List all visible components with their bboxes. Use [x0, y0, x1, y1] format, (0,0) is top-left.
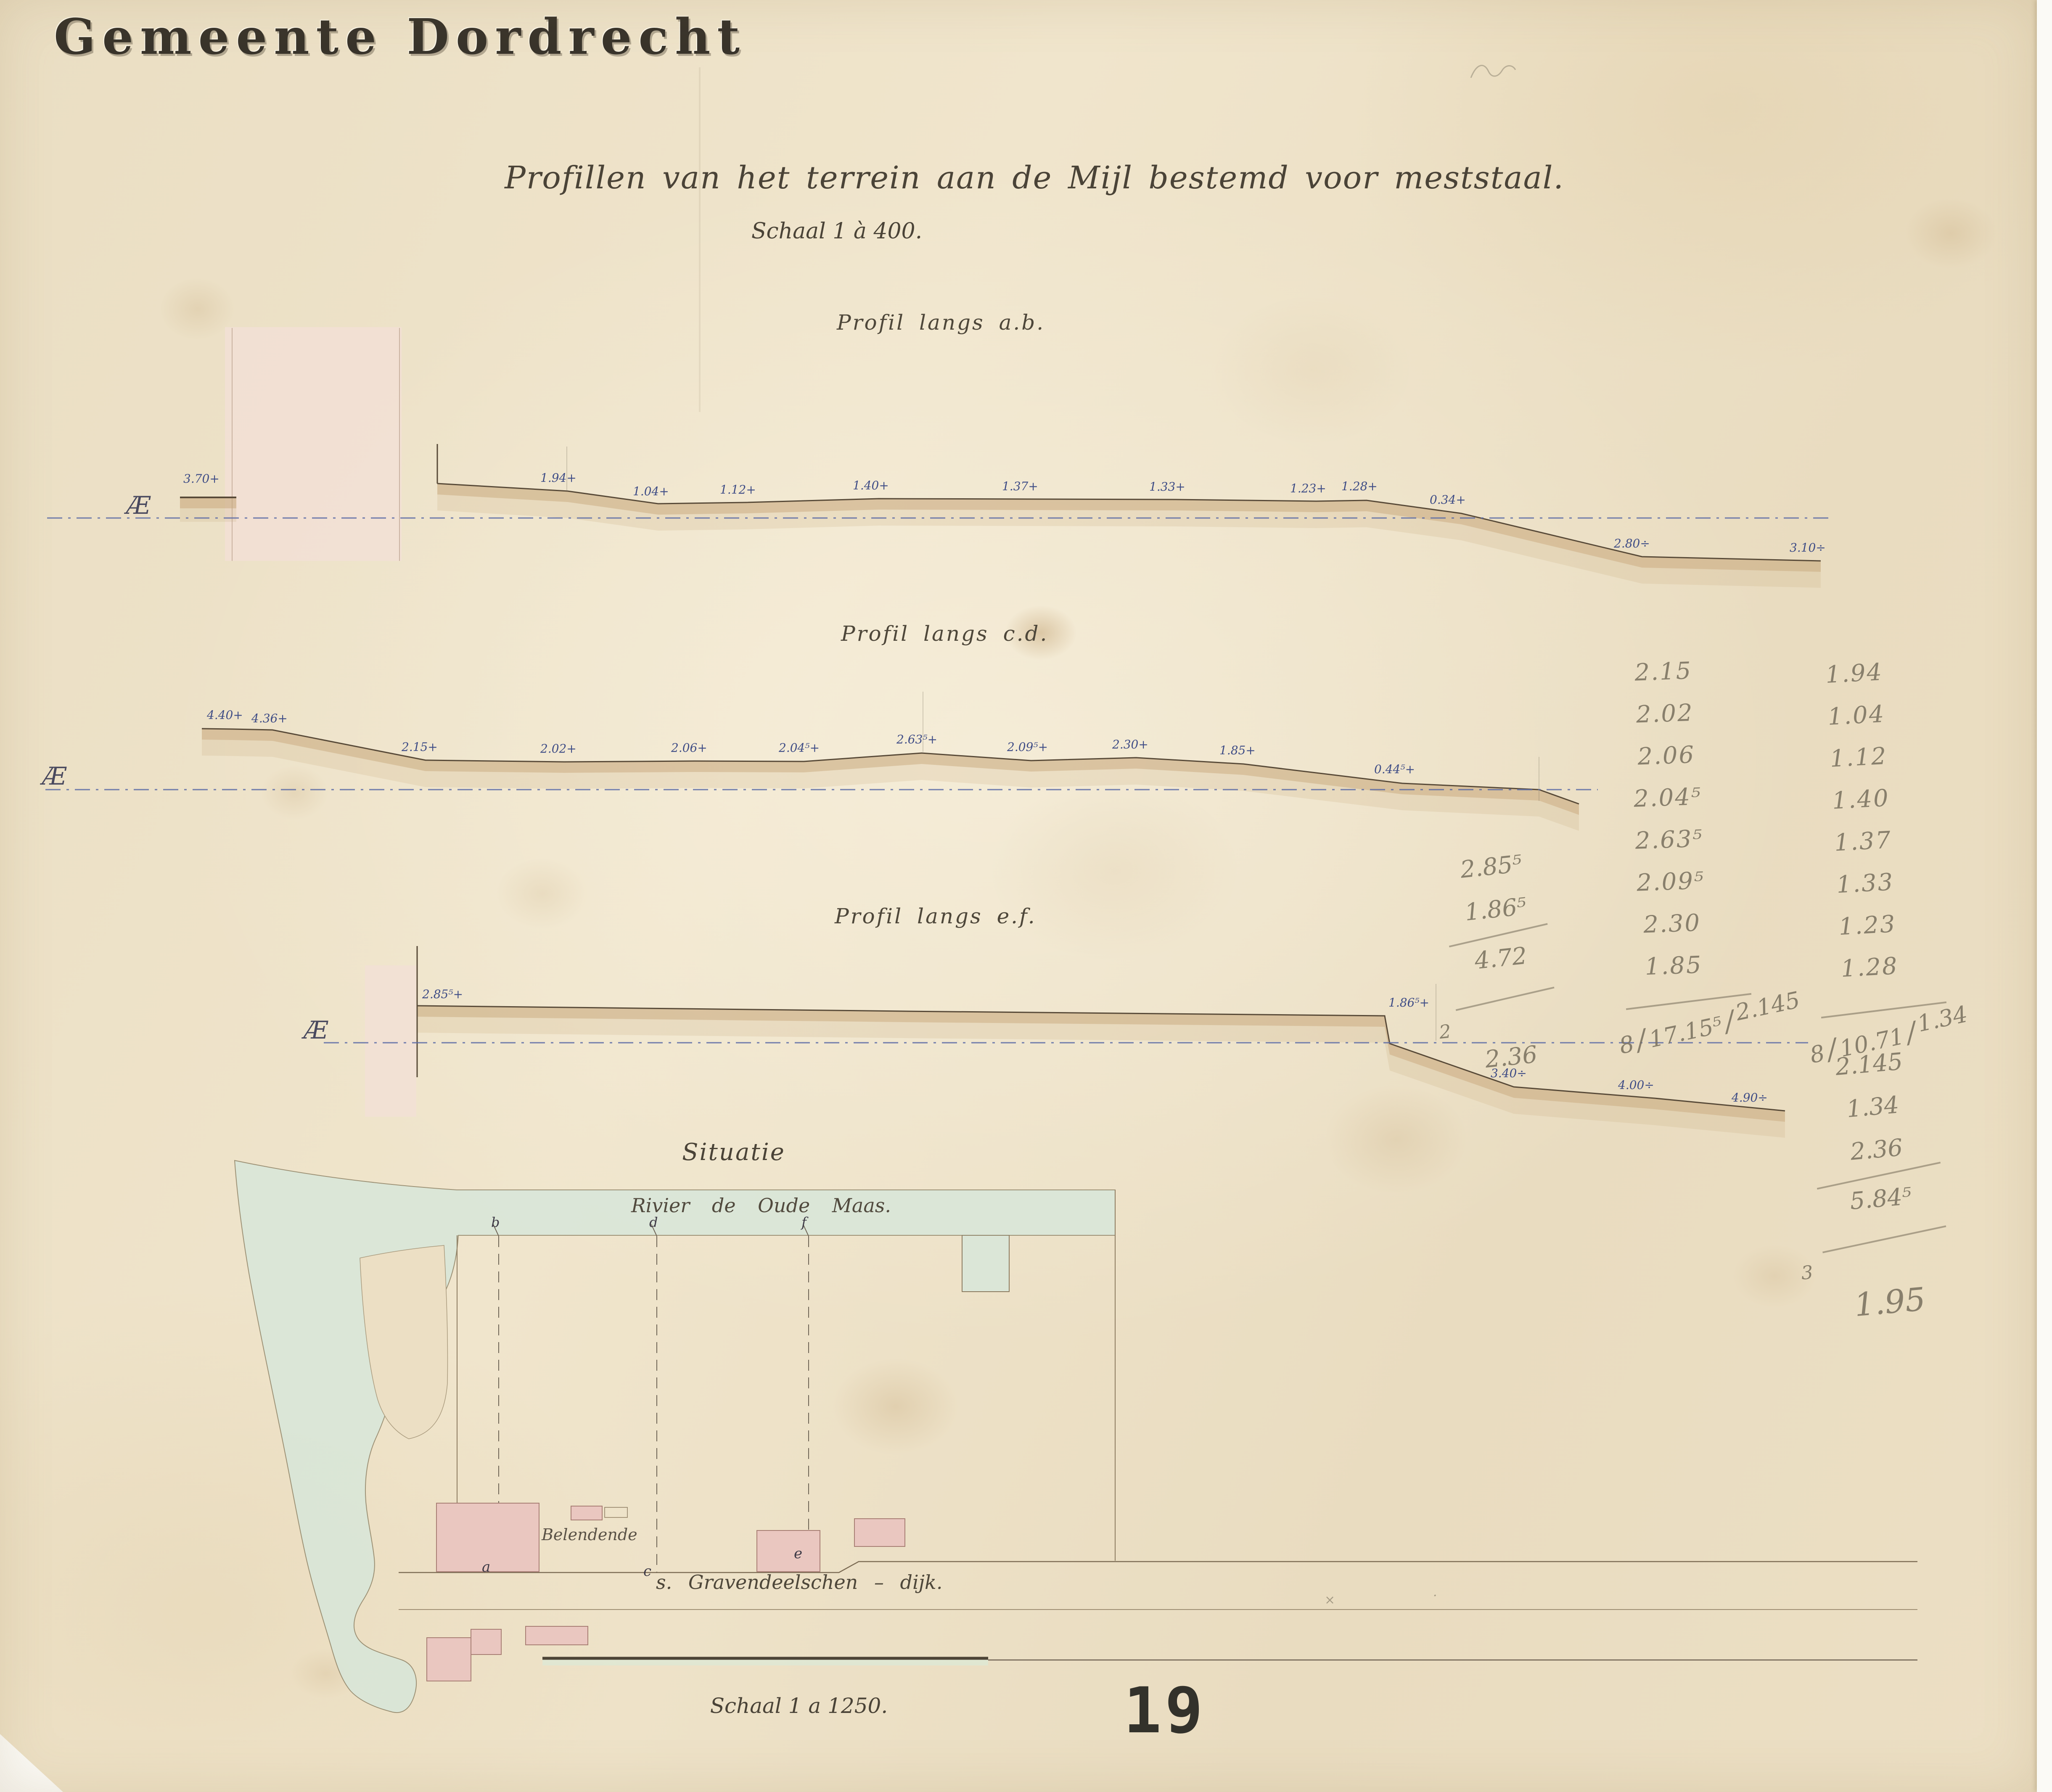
- pencil-mark: ·: [1433, 1588, 1437, 1603]
- pencil-column-cd: 2.152.022.062.04⁵2.63⁵2.09⁵2.301.85: [1604, 649, 1733, 989]
- dike-top-edge: [399, 1562, 1917, 1573]
- scanned-drawing-sheet: 3.70+Æ1.94+1.04+1.12+1.40+1.37+1.33+1.23…: [0, 0, 2052, 1792]
- building-label: Belendende: [542, 1525, 637, 1544]
- elevation-label: 0.44⁵+: [1374, 762, 1415, 776]
- elevation-label: 2.85⁵+: [422, 987, 463, 1001]
- pencil-value: 2.09⁵: [1611, 859, 1730, 905]
- elevation-label: 4.36+: [251, 711, 288, 725]
- elevation-label: 1.04+: [633, 484, 669, 498]
- pencil-sum: 4.72: [1444, 933, 1558, 985]
- elevation-label: 2.80÷: [1613, 537, 1650, 550]
- pencil-underline: [1456, 987, 1555, 1011]
- ap-datum-symbol: Æ: [124, 491, 151, 520]
- pencil-block-mean: 2.1451.342.36 5.84⁵ 3 1.95: [1796, 1037, 1963, 1333]
- elevation-label: 3.70+: [183, 472, 219, 486]
- endpoint-letter-top: b: [491, 1214, 500, 1230]
- road-verge: [542, 1660, 988, 1665]
- elevation-label: 1.37+: [1002, 479, 1038, 493]
- scan-edge: [2037, 0, 2052, 1792]
- sheet-title: Profillen van het terrein aan de Mijl be…: [479, 160, 1589, 196]
- pencil-divisor: 3: [1800, 1262, 1814, 1284]
- pencil-value: 1.94: [1794, 650, 1914, 698]
- building: [427, 1638, 471, 1681]
- building: [526, 1626, 588, 1645]
- endpoint-letter-bottom: e: [794, 1545, 802, 1562]
- pencil-value: 1.28: [1810, 944, 1930, 992]
- page-number: 19: [1124, 1674, 1206, 1747]
- building: [854, 1519, 905, 1546]
- drawing-layer: 3.70+Æ1.94+1.04+1.12+1.40+1.37+1.33+1.23…: [0, 0, 2052, 1792]
- pencil-value: 2.06: [1607, 733, 1726, 779]
- elevation-label: 3.10÷: [1790, 541, 1826, 555]
- terrain-wash: [417, 1006, 1785, 1138]
- pencil-value: 2.15: [1604, 649, 1723, 695]
- ap-datum-symbol: Æ: [301, 1016, 328, 1044]
- elevation-label: 2.04⁵+: [778, 741, 820, 755]
- elevation-label: 2.15+: [401, 740, 438, 754]
- map-scale-label: Schaal 1 a 1250.: [690, 1694, 908, 1718]
- elevation-label: 4.90÷: [1731, 1091, 1768, 1105]
- profile-cd-title: Profil langs c.d.: [841, 621, 1048, 646]
- pencil-value: 1.37: [1803, 818, 1923, 866]
- elevation-label: 1.40+: [853, 478, 889, 492]
- elevation-label: 4.40+: [206, 708, 243, 722]
- pencil-divisor: 2: [1438, 1021, 1452, 1044]
- river-label: Rivier de Oude Maas.: [597, 1194, 925, 1217]
- ap-datum-symbol: Æ: [40, 762, 67, 790]
- elevation-label: 2.09⁵+: [1007, 740, 1048, 754]
- elevation-label: 2.30+: [1112, 737, 1148, 751]
- building: [471, 1629, 501, 1655]
- pencil-value: 2.30: [1613, 901, 1732, 947]
- elevation-label: 0.34+: [1430, 493, 1466, 507]
- elevation-label: 1.86⁵+: [1388, 996, 1429, 1010]
- profile-ab-title: Profil langs a.b.: [837, 310, 1045, 335]
- pencil-value: 2.02: [1605, 691, 1724, 737]
- elevation-label: 1.12+: [720, 483, 756, 497]
- profile-pink-wash: [225, 327, 402, 561]
- municipality-title: Gemeente Dordrecht: [54, 8, 746, 66]
- elevation-label: 1.94+: [540, 471, 576, 485]
- pencil-value: 1.04: [1796, 692, 1916, 740]
- profile-ef-title: Profil langs e.f.: [835, 904, 1037, 928]
- building: [571, 1506, 602, 1520]
- water-inlet: [962, 1235, 1009, 1292]
- endpoint-letter-bottom: c: [643, 1563, 651, 1580]
- elevation-label: 2.02+: [540, 742, 576, 756]
- pencil-value: 2.63⁵: [1610, 817, 1729, 863]
- pencil-value: 1.40: [1801, 776, 1921, 824]
- pencil-value: 1.12: [1799, 734, 1919, 782]
- elevation-label: 1.33+: [1149, 480, 1185, 494]
- pencil-scribble: [1471, 66, 1515, 78]
- pencil-value: 1.33: [1805, 860, 1925, 908]
- dike-label: s. Gravendeelschen – dijk.: [656, 1571, 942, 1594]
- endpoint-letter-bottom: a: [482, 1559, 490, 1575]
- pencil-value: 1.23: [1808, 901, 1928, 950]
- map-title: Situatie: [645, 1139, 822, 1166]
- elevation-label: 1.85+: [1219, 743, 1256, 757]
- profile-pink-wash: [365, 965, 416, 1117]
- pencil-mark: ⨯: [1325, 1593, 1335, 1607]
- elevation-label: 1.28+: [1341, 479, 1378, 493]
- building: [757, 1530, 820, 1572]
- pencil-value: 2.04⁵: [1608, 775, 1727, 821]
- elevation-label: 4.00÷: [1618, 1078, 1654, 1092]
- elevation-label: 1.23+: [1290, 481, 1326, 495]
- pencil-column-ab: 1.941.041.121.401.371.331.231.28: [1794, 650, 1929, 992]
- pencil-underline: [1822, 1225, 1946, 1253]
- elevation-label: 2.63⁵+: [896, 732, 937, 746]
- pencil-sum: 5.84⁵: [1808, 1173, 1954, 1225]
- pencil-value: 1.85: [1614, 943, 1733, 989]
- profiles-scale-label: Schaal 1 à 400.: [711, 219, 963, 244]
- building-outline: [605, 1507, 627, 1517]
- elevation-label: 2.06+: [671, 741, 707, 755]
